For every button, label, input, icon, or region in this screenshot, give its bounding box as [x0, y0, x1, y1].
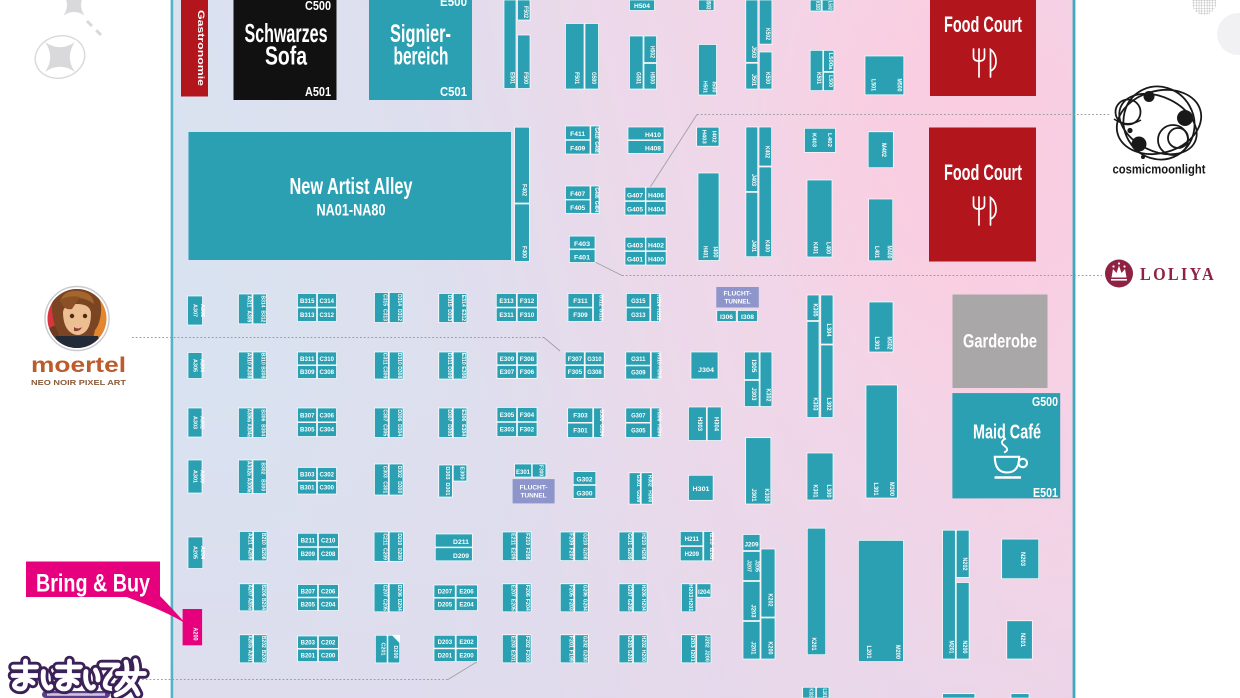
svg-text:A302: A302 — [199, 416, 205, 429]
svg-text:A311: A311 — [246, 295, 252, 307]
svg-text:G201: G201 — [626, 650, 632, 662]
svg-text:F401: F401 — [574, 255, 590, 262]
svg-text:H204: H204 — [640, 599, 646, 611]
svg-text:F502: F502 — [522, 6, 528, 19]
svg-text:cosmicmoonlight: cosmicmoonlight — [1113, 163, 1207, 177]
svg-text:E300: E300 — [458, 467, 464, 480]
svg-text:A310: A310 — [246, 353, 252, 365]
svg-text:J301: J301 — [750, 489, 756, 503]
svg-text:D210: D210 — [396, 533, 402, 545]
svg-text:B202: B202 — [260, 636, 266, 648]
svg-text:E204: E204 — [459, 602, 474, 609]
svg-text:E206: E206 — [459, 589, 474, 596]
svg-text:C207: C207 — [382, 585, 388, 597]
svg-text:D311: D311 — [446, 353, 452, 365]
svg-text:Garderobe: Garderobe — [963, 332, 1037, 353]
svg-text:A204: A204 — [199, 546, 205, 560]
svg-text:G299: G299 — [635, 490, 641, 502]
svg-text:F400: F400 — [520, 246, 526, 259]
svg-text:H203: H203 — [687, 584, 693, 597]
svg-text:F405: F405 — [570, 205, 585, 212]
svg-text:K501: K501 — [815, 72, 821, 85]
svg-text:I500: I500 — [711, 82, 717, 93]
svg-text:H404: H404 — [648, 207, 664, 214]
svg-text:A303: A303 — [192, 416, 198, 429]
svg-text:C200: C200 — [321, 653, 336, 660]
svg-text:F311: F311 — [573, 298, 588, 305]
svg-text:D302: D302 — [396, 466, 402, 478]
svg-text:H211: H211 — [685, 536, 700, 543]
svg-text:B209: B209 — [301, 551, 316, 558]
svg-text:H310: H310 — [655, 353, 661, 365]
svg-text:J401: J401 — [750, 240, 756, 253]
svg-text:E501: E501 — [508, 72, 514, 85]
svg-text:H502: H502 — [649, 46, 655, 59]
svg-text:G208: G208 — [581, 547, 587, 559]
svg-text:I208: I208 — [708, 547, 714, 559]
svg-text:G202: G202 — [581, 636, 587, 648]
svg-text:G305: G305 — [631, 427, 646, 434]
svg-text:New Artist Alley: New Artist Alley — [290, 173, 413, 199]
svg-text:G405: G405 — [627, 207, 643, 214]
svg-text:A200: A200 — [192, 628, 198, 642]
svg-text:H400: H400 — [648, 257, 664, 264]
svg-text:K300: K300 — [763, 489, 769, 503]
svg-text:TUNNEL: TUNNEL — [725, 299, 751, 306]
svg-text:A305: A305 — [192, 359, 198, 372]
svg-text:A209: A209 — [246, 547, 252, 559]
svg-text:J207: J207 — [746, 560, 752, 572]
svg-text:G401: G401 — [627, 257, 643, 264]
svg-text:H308: H308 — [655, 366, 661, 378]
svg-text:B315: B315 — [300, 298, 315, 305]
svg-text:I308: I308 — [741, 314, 754, 321]
svg-text:G310: G310 — [598, 309, 604, 321]
svg-text:L400: L400 — [824, 242, 830, 255]
svg-text:E203: E203 — [510, 636, 516, 648]
svg-text:B309: B309 — [300, 369, 315, 376]
svg-text:J304: J304 — [698, 367, 714, 374]
svg-text:E312: E312 — [460, 309, 466, 321]
svg-text:H402: H402 — [648, 242, 664, 249]
svg-text:K305: K305 — [811, 304, 817, 318]
svg-text:L304: L304 — [825, 324, 831, 338]
svg-text:B208: B208 — [260, 547, 266, 559]
svg-text:A301: A301 — [192, 470, 198, 483]
svg-text:A203a: A203a — [246, 636, 252, 649]
svg-text:NA01-NA80: NA01-NA80 — [317, 201, 386, 220]
svg-text:A300: A300 — [199, 470, 205, 483]
svg-text:D200: D200 — [392, 646, 398, 659]
svg-text:E307: E307 — [500, 369, 515, 376]
svg-text:G308: G308 — [587, 369, 602, 376]
svg-text:F210: F210 — [524, 533, 530, 545]
svg-text:K202: K202 — [766, 594, 772, 608]
svg-text:B210: B210 — [260, 533, 266, 545]
svg-text:Food Court: Food Court — [944, 12, 1022, 37]
svg-text:I203: I203 — [689, 636, 695, 648]
svg-text:G301: G301 — [635, 475, 641, 487]
svg-text:D211: D211 — [453, 539, 469, 546]
svg-text:H300: H300 — [647, 490, 653, 502]
svg-text:F303: F303 — [573, 413, 588, 420]
svg-text:M400: M400 — [885, 246, 891, 260]
svg-text:E501: E501 — [1033, 485, 1058, 500]
svg-text:A306a: A306a — [246, 409, 252, 422]
svg-text:F202: F202 — [524, 636, 530, 648]
svg-text:M402: M402 — [880, 143, 886, 158]
svg-text:I201: I201 — [689, 650, 695, 662]
svg-text:L402: L402 — [826, 133, 832, 147]
svg-text:E304: E304 — [460, 424, 466, 436]
svg-text:G501: G501 — [635, 72, 641, 85]
svg-text:G205: G205 — [626, 599, 632, 611]
svg-text:moertel: moertel — [31, 354, 126, 377]
svg-text:J503: J503 — [750, 46, 756, 59]
svg-text:C304: C304 — [320, 427, 335, 434]
svg-text:B313: B313 — [300, 312, 315, 319]
svg-text:F302: F302 — [520, 427, 535, 434]
svg-text:B206: B206 — [260, 585, 266, 597]
svg-text:G200: G200 — [581, 650, 587, 662]
svg-text:A306: A306 — [199, 304, 205, 317]
svg-text:D201: D201 — [438, 652, 453, 659]
svg-text:B302: B302 — [260, 462, 266, 474]
svg-text:H303: H303 — [696, 417, 702, 432]
svg-text:G315: G315 — [631, 298, 646, 305]
svg-text:J403: J403 — [750, 174, 756, 187]
svg-text:B304: B304 — [260, 424, 266, 436]
svg-text:H210: H210 — [640, 533, 646, 545]
svg-text:bereich: bereich — [394, 43, 449, 71]
svg-text:K200: K200 — [766, 642, 772, 656]
svg-text:F307: F307 — [568, 356, 583, 363]
svg-text:K102: K102 — [808, 689, 814, 698]
svg-text:L301: L301 — [872, 483, 878, 497]
svg-text:A207: A207 — [246, 585, 252, 597]
svg-text:D310: D310 — [396, 353, 402, 365]
svg-text:E303: E303 — [500, 427, 515, 434]
svg-text:F308: F308 — [520, 356, 535, 363]
svg-text:G312: G312 — [598, 295, 604, 307]
svg-text:G302: G302 — [577, 477, 593, 484]
svg-text:F309: F309 — [573, 312, 588, 319]
svg-text:F407: F407 — [570, 191, 585, 198]
svg-text:K201: K201 — [810, 638, 816, 652]
svg-text:H200: H200 — [640, 650, 646, 662]
svg-text:A201: A201 — [246, 650, 252, 662]
svg-text:H209: H209 — [685, 551, 700, 558]
svg-text:G209: G209 — [626, 547, 632, 559]
svg-text:L300: L300 — [825, 485, 831, 499]
svg-text:H302: H302 — [647, 475, 653, 487]
svg-text:B201: B201 — [301, 653, 316, 660]
svg-text:A302a: A302a — [246, 461, 252, 476]
svg-text:C210: C210 — [321, 537, 336, 544]
svg-text:F205: F205 — [567, 585, 573, 597]
svg-text:A304: A304 — [199, 359, 205, 373]
svg-text:J303: J303 — [750, 388, 756, 402]
svg-text:C311: C311 — [382, 353, 388, 365]
svg-text:C301: C301 — [382, 481, 388, 493]
svg-text:D205: D205 — [438, 602, 453, 609]
svg-text:H206: H206 — [640, 585, 646, 597]
svg-text:H304: H304 — [655, 424, 661, 437]
svg-text:Food Court: Food Court — [944, 160, 1022, 185]
svg-text:J200: J200 — [704, 650, 710, 662]
svg-text:E308: E308 — [460, 366, 466, 378]
svg-text:B310: B310 — [260, 353, 266, 365]
svg-text:G203: G203 — [626, 636, 632, 648]
svg-text:NEO NOIR PIXEL ART: NEO NOIR PIXEL ART — [31, 378, 127, 387]
svg-text:I210: I210 — [708, 533, 714, 545]
svg-text:K403: K403 — [810, 133, 816, 148]
svg-text:G313: G313 — [631, 312, 646, 319]
svg-text:B211: B211 — [301, 537, 316, 544]
svg-text:B312: B312 — [260, 310, 266, 322]
svg-text:D305: D305 — [446, 424, 452, 436]
svg-text:B204: B204 — [260, 598, 266, 610]
svg-text:H202: H202 — [640, 636, 646, 648]
svg-text:H408: H408 — [645, 146, 661, 153]
svg-text:E209: E209 — [510, 547, 516, 559]
svg-text:H403: H403 — [701, 130, 707, 144]
svg-text:C315: C315 — [382, 294, 388, 306]
svg-text:L501: L501 — [870, 79, 876, 92]
svg-text:H501: H501 — [702, 81, 708, 94]
svg-text:M500: M500 — [896, 79, 902, 93]
svg-text:E500: E500 — [440, 0, 467, 9]
svg-text:C500: C500 — [305, 0, 331, 13]
svg-text:B306: B306 — [260, 409, 266, 421]
svg-text:J202: J202 — [704, 636, 710, 648]
svg-text:D301: D301 — [444, 483, 450, 496]
svg-text:M201: M201 — [947, 641, 953, 655]
svg-text:H208: H208 — [640, 547, 646, 559]
svg-text:B205: B205 — [301, 601, 316, 608]
svg-text:N203: N203 — [1019, 552, 1025, 567]
svg-text:G410: G410 — [593, 128, 599, 139]
svg-text:G311: G311 — [631, 356, 646, 363]
svg-text:B300: B300 — [260, 479, 266, 491]
svg-text:A304a: A304a — [246, 424, 252, 437]
svg-text:Maid Café: Maid Café — [973, 422, 1041, 444]
svg-text:I402: I402 — [711, 131, 717, 143]
svg-text:K402: K402 — [764, 146, 770, 159]
svg-text:K401: K401 — [812, 242, 818, 255]
svg-text:D315: D315 — [446, 295, 452, 307]
svg-text:F199: F199 — [567, 650, 573, 662]
svg-text:G300: G300 — [577, 490, 593, 497]
svg-text:F209: F209 — [567, 533, 573, 545]
svg-text:H410: H410 — [645, 132, 661, 139]
svg-text:B207: B207 — [301, 588, 316, 595]
svg-text:H314: H314 — [655, 295, 661, 308]
svg-text:L201: L201 — [865, 646, 871, 660]
svg-text:G210: G210 — [581, 533, 587, 545]
svg-text:F203: F203 — [567, 599, 573, 611]
svg-text:M300: M300 — [888, 482, 894, 497]
svg-text:F208: F208 — [524, 547, 530, 559]
svg-text:E200: E200 — [459, 652, 474, 659]
svg-text:J209: J209 — [745, 542, 760, 549]
svg-text:B301: B301 — [300, 485, 315, 492]
svg-text:K301: K301 — [812, 485, 818, 499]
svg-text:E211: E211 — [510, 533, 516, 545]
svg-text:F306: F306 — [520, 369, 535, 376]
svg-text:N201: N201 — [1019, 633, 1025, 648]
svg-text:H312: H312 — [655, 309, 661, 321]
svg-text:F411: F411 — [570, 131, 585, 138]
svg-text:C208: C208 — [321, 551, 336, 558]
svg-text:F300: F300 — [537, 465, 543, 476]
svg-text:F409: F409 — [570, 146, 585, 153]
svg-text:G404: G404 — [593, 201, 599, 212]
svg-text:F310: F310 — [520, 312, 535, 319]
svg-text:D204: D204 — [396, 599, 402, 611]
svg-text:C309: C309 — [382, 366, 388, 378]
svg-text:G407: G407 — [627, 192, 643, 199]
svg-text:K502: K502 — [764, 28, 770, 41]
svg-text:N202: N202 — [961, 558, 967, 572]
svg-text:C300: C300 — [320, 485, 335, 492]
svg-text:TUNNEL: TUNNEL — [521, 493, 547, 500]
svg-text:G211: G211 — [626, 533, 632, 545]
svg-text:D208: D208 — [396, 548, 402, 560]
svg-text:A211: A211 — [246, 533, 252, 545]
svg-text:C313: C313 — [382, 309, 388, 321]
svg-text:E311: E311 — [499, 312, 514, 319]
svg-text:G500: G500 — [1032, 394, 1058, 409]
svg-text:B203: B203 — [301, 640, 316, 647]
svg-text:F312: F312 — [520, 298, 535, 305]
svg-text:F403: F403 — [574, 241, 590, 248]
svg-text:C501: C501 — [440, 85, 467, 99]
svg-text:B308: B308 — [260, 366, 266, 378]
svg-text:B311: B311 — [300, 356, 315, 363]
svg-text:J501: J501 — [750, 74, 756, 87]
svg-text:D303: D303 — [444, 467, 450, 480]
svg-text:G207: G207 — [626, 585, 632, 597]
svg-text:F207: F207 — [567, 547, 573, 559]
svg-text:C306: C306 — [320, 412, 335, 419]
svg-text:D207: D207 — [438, 589, 453, 596]
svg-text:I306: I306 — [720, 314, 733, 321]
svg-text:C204: C204 — [321, 601, 336, 608]
svg-text:A300a: A300a — [246, 478, 252, 493]
svg-text:F501: F501 — [573, 72, 579, 85]
svg-text:FLUCHT-: FLUCHT- — [520, 485, 548, 492]
svg-text:D209: D209 — [453, 553, 469, 560]
svg-text:D308: D308 — [396, 366, 402, 378]
svg-text:H201: H201 — [687, 598, 693, 611]
svg-text:L303: L303 — [873, 337, 879, 351]
svg-text:K400: K400 — [764, 240, 770, 253]
svg-text:F402: F402 — [520, 184, 526, 197]
svg-text:D203: D203 — [438, 639, 453, 646]
svg-text:D313: D313 — [446, 309, 452, 321]
svg-text:E305: E305 — [500, 412, 515, 419]
svg-text:B303: B303 — [300, 471, 315, 478]
svg-text:G309: G309 — [631, 370, 646, 377]
svg-text:F500: F500 — [522, 72, 528, 85]
svg-text:L401: L401 — [873, 246, 879, 259]
svg-text:K302: K302 — [764, 389, 770, 403]
svg-text:G307: G307 — [631, 413, 646, 420]
svg-text:E202: E202 — [459, 639, 474, 646]
svg-text:G204: G204 — [581, 599, 587, 611]
svg-text:K303: K303 — [811, 398, 817, 412]
svg-text:A309: A309 — [246, 310, 252, 322]
svg-text:G206: G206 — [581, 585, 587, 597]
svg-text:H401: H401 — [701, 246, 707, 259]
svg-text:I503: I503 — [705, 1, 711, 11]
svg-text:D206: D206 — [396, 585, 402, 597]
svg-text:J205: J205 — [754, 560, 760, 572]
svg-text:A205: A205 — [192, 546, 198, 559]
svg-text:F206: F206 — [524, 585, 530, 597]
svg-text:D300: D300 — [396, 481, 402, 493]
svg-text:D304: D304 — [396, 424, 402, 436]
svg-text:G403: G403 — [627, 242, 643, 249]
svg-text:A307: A307 — [191, 304, 197, 317]
svg-text:C211: C211 — [382, 533, 388, 545]
svg-text:L500a: L500a — [827, 53, 833, 71]
svg-text:C308: C308 — [320, 369, 335, 376]
svg-text:L101: L101 — [821, 689, 827, 698]
svg-text:FLUCHT-: FLUCHT- — [724, 291, 752, 298]
svg-text:C201: C201 — [380, 643, 386, 656]
svg-text:D306: D306 — [396, 409, 402, 421]
svg-text:E310: E310 — [460, 353, 466, 365]
svg-text:E301: E301 — [516, 469, 530, 476]
svg-text:J201: J201 — [750, 642, 756, 656]
svg-text:M302: M302 — [886, 337, 892, 351]
svg-text:F305: F305 — [568, 369, 583, 376]
svg-text:G310: G310 — [587, 356, 602, 363]
svg-text:G306: G306 — [598, 409, 604, 421]
svg-text:C303: C303 — [382, 466, 388, 478]
svg-text:B305: B305 — [300, 427, 315, 434]
svg-text:Sofa: Sofa — [265, 41, 307, 71]
svg-text:H406: H406 — [648, 192, 664, 199]
svg-text:A205a: A205a — [246, 598, 252, 610]
svg-text:D314: D314 — [396, 294, 402, 306]
svg-text:I204: I204 — [698, 590, 711, 596]
svg-text:K503: K503 — [814, 1, 820, 10]
svg-text:F200: F200 — [524, 650, 530, 662]
svg-text:B307: B307 — [300, 412, 315, 419]
svg-text:D309: D309 — [446, 366, 452, 378]
svg-text:G304: G304 — [598, 424, 604, 437]
svg-text:H504: H504 — [634, 3, 650, 10]
svg-text:B314: B314 — [260, 295, 266, 307]
svg-text:L502: L502 — [826, 1, 832, 10]
svg-text:E201: E201 — [510, 650, 516, 662]
svg-text:C209: C209 — [382, 548, 388, 560]
svg-text:I305: I305 — [750, 360, 756, 374]
svg-text:E309: E309 — [500, 356, 515, 363]
svg-text:D307: D307 — [446, 409, 452, 421]
svg-text:K500: K500 — [764, 72, 770, 85]
svg-text:I400: I400 — [712, 247, 718, 259]
svg-text:E314: E314 — [460, 295, 466, 307]
svg-text:A501: A501 — [305, 85, 331, 99]
svg-text:C314: C314 — [320, 298, 335, 305]
svg-text:E207: E207 — [510, 585, 516, 597]
svg-text:LOLIYA: LOLIYA — [1140, 264, 1216, 284]
svg-text:G500: G500 — [590, 72, 596, 85]
